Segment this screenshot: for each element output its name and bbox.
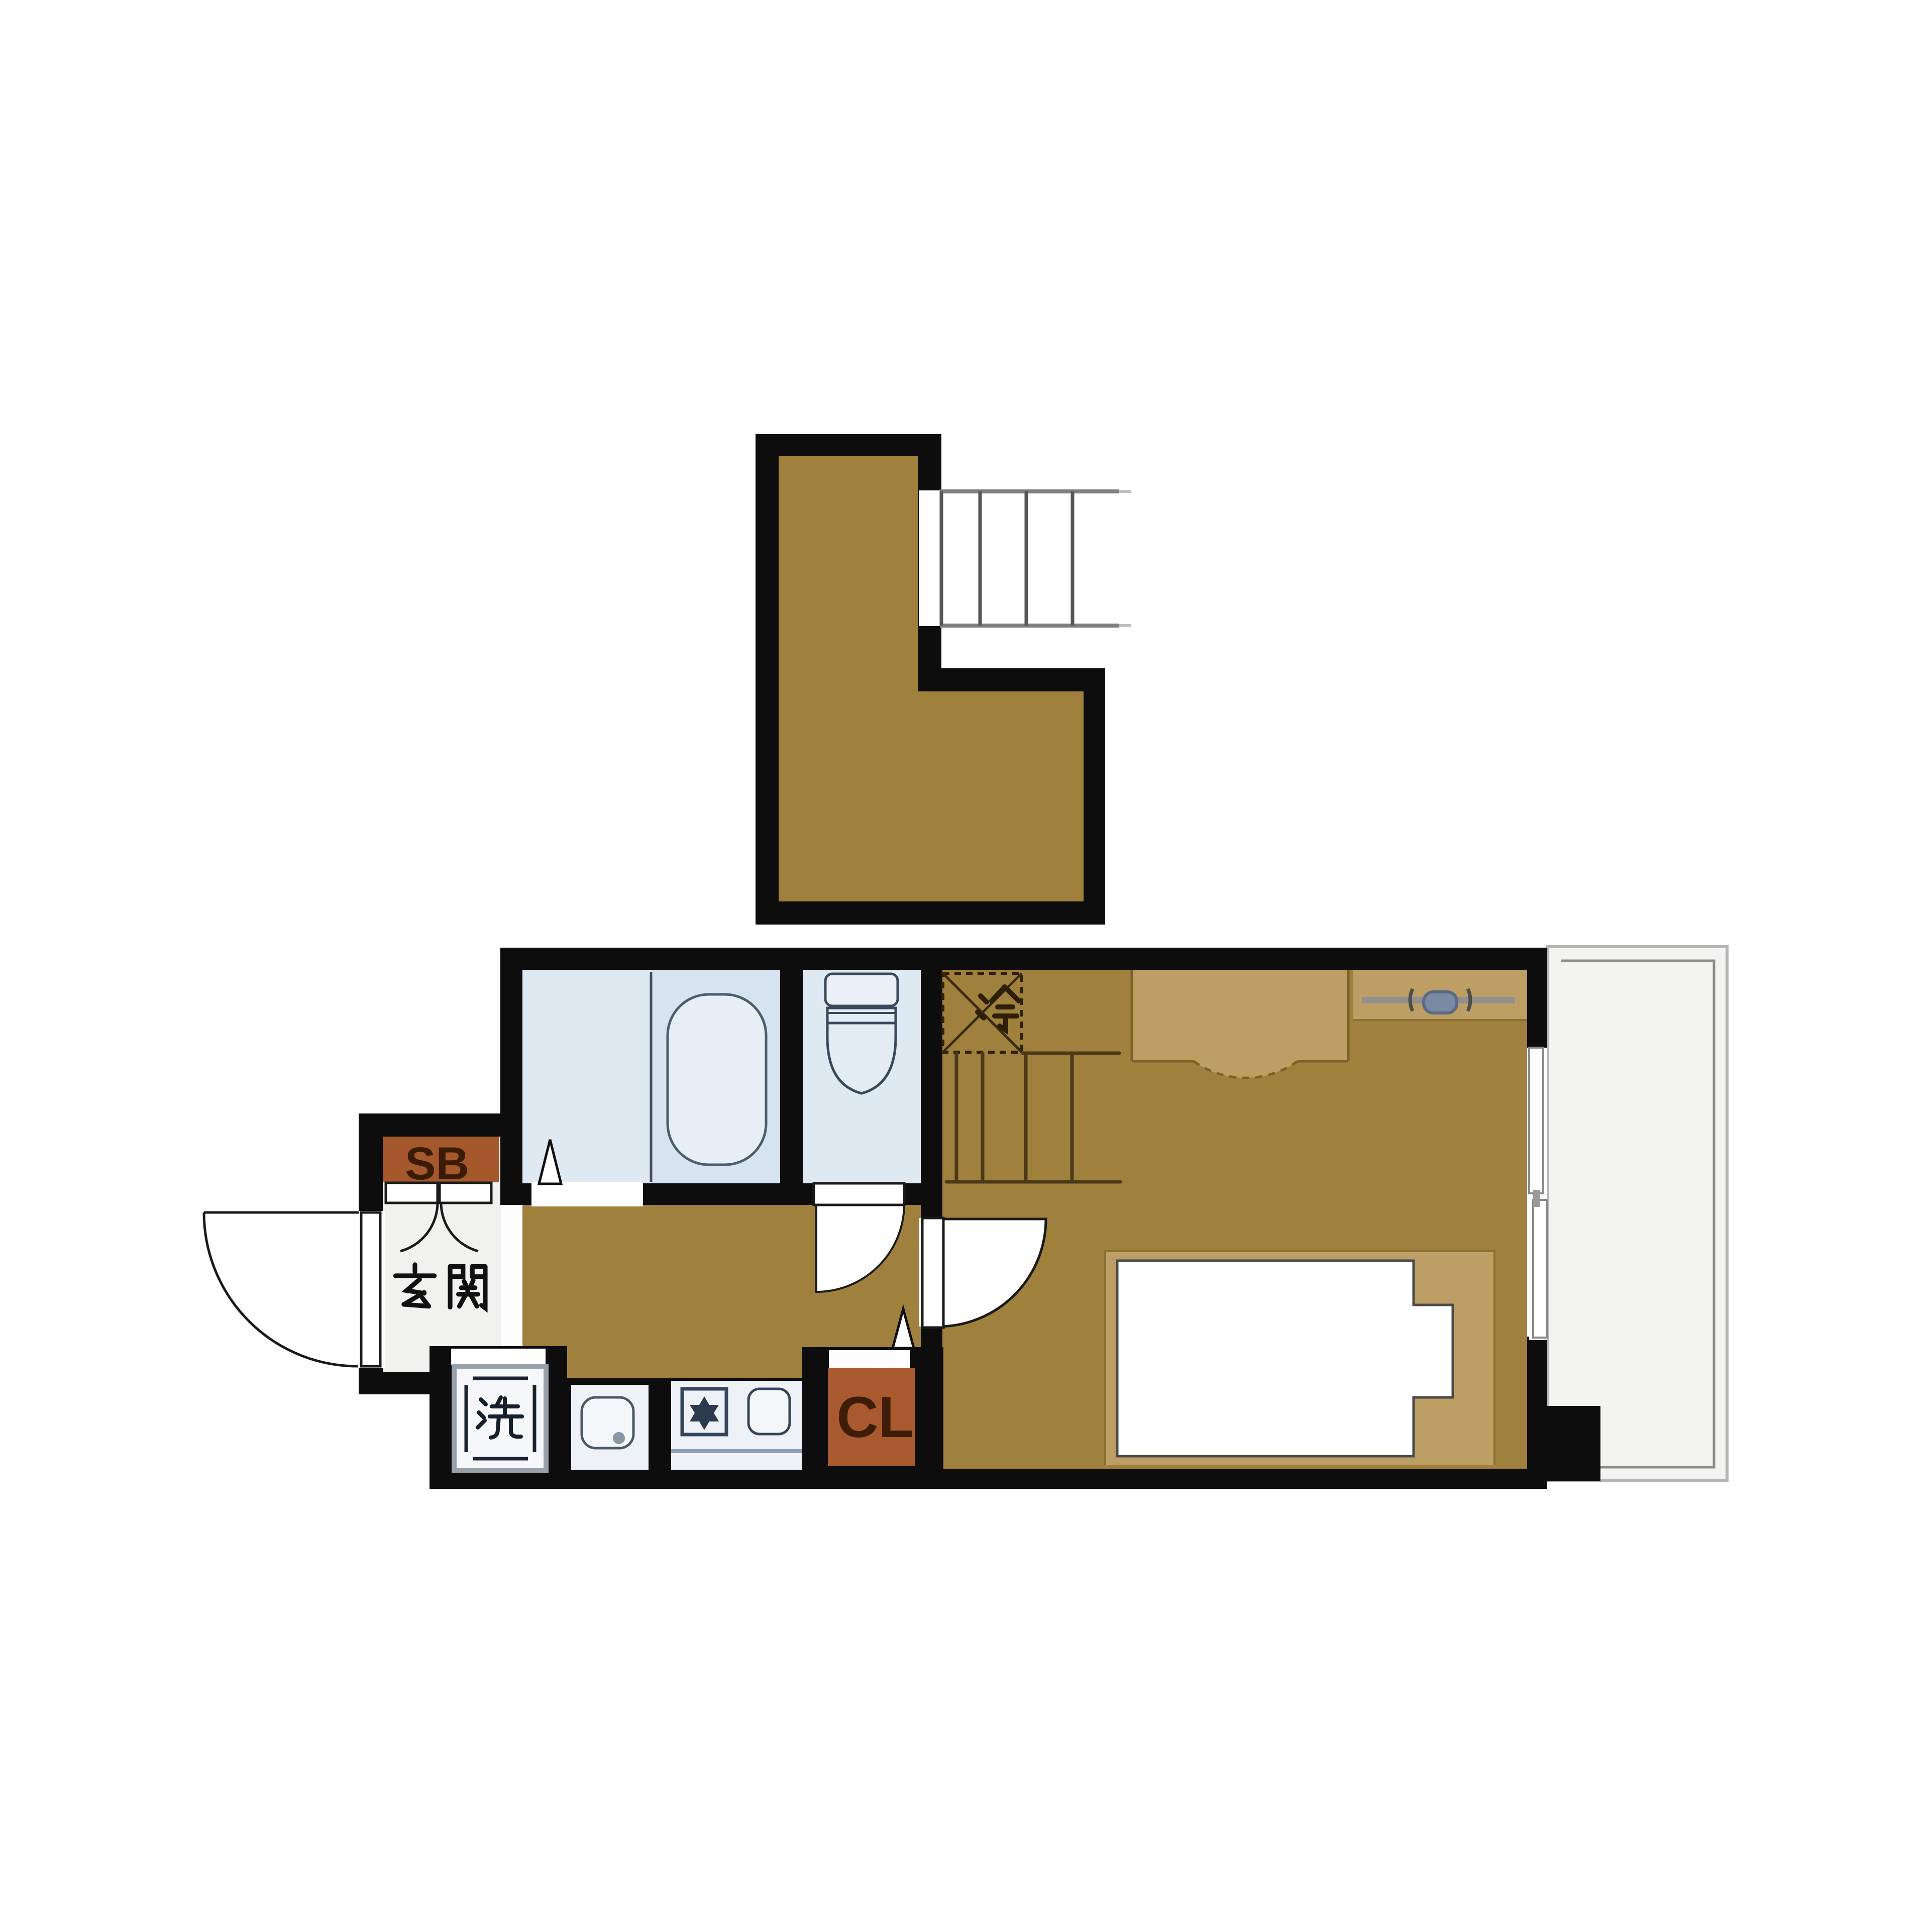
svg-text:SB: SB — [405, 1138, 469, 1189]
svg-text:CL: CL — [836, 1385, 913, 1450]
